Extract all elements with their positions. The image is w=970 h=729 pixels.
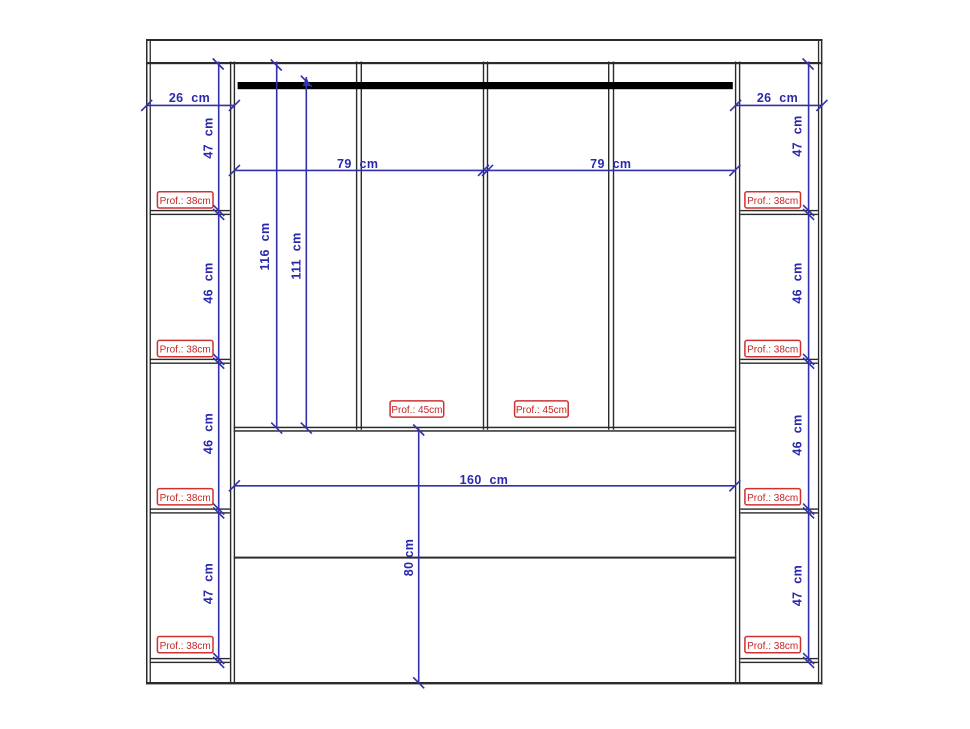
svg-text:Prof.: 38cm: Prof.: 38cm xyxy=(747,345,798,356)
svg-text:Prof.: 38cm: Prof.: 38cm xyxy=(160,641,211,652)
svg-text:79 cm: 79 cm xyxy=(337,157,378,171)
svg-text:26 cm: 26 cm xyxy=(169,91,210,105)
svg-text:46 cm: 46 cm xyxy=(201,262,215,303)
svg-text:47 cm: 47 cm xyxy=(201,117,215,158)
svg-text:160 cm: 160 cm xyxy=(460,473,509,487)
svg-text:47 cm: 47 cm xyxy=(201,563,215,604)
svg-text:47 cm: 47 cm xyxy=(791,115,805,156)
svg-text:Prof.: 38cm: Prof.: 38cm xyxy=(747,196,798,207)
svg-text:47 cm: 47 cm xyxy=(791,565,805,606)
svg-text:Prof.: 38cm: Prof.: 38cm xyxy=(160,196,211,207)
svg-text:Prof.: 38cm: Prof.: 38cm xyxy=(747,641,798,652)
svg-text:111 cm: 111 cm xyxy=(290,232,304,279)
svg-text:Prof.: 38cm: Prof.: 38cm xyxy=(747,493,798,504)
svg-text:26 cm: 26 cm xyxy=(757,91,798,105)
svg-text:80 cm: 80 cm xyxy=(402,539,416,576)
svg-text:116 cm: 116 cm xyxy=(258,223,272,271)
svg-text:Prof.: 38cm: Prof.: 38cm xyxy=(160,345,211,356)
svg-text:Prof.: 38cm: Prof.: 38cm xyxy=(160,493,211,504)
svg-text:Prof.: 45cm: Prof.: 45cm xyxy=(391,405,442,416)
svg-text:46 cm: 46 cm xyxy=(791,414,805,455)
svg-text:46 cm: 46 cm xyxy=(201,413,215,454)
svg-text:Prof.: 45cm: Prof.: 45cm xyxy=(516,405,567,416)
svg-text:46 cm: 46 cm xyxy=(791,262,805,303)
svg-text:79 cm: 79 cm xyxy=(590,157,631,171)
